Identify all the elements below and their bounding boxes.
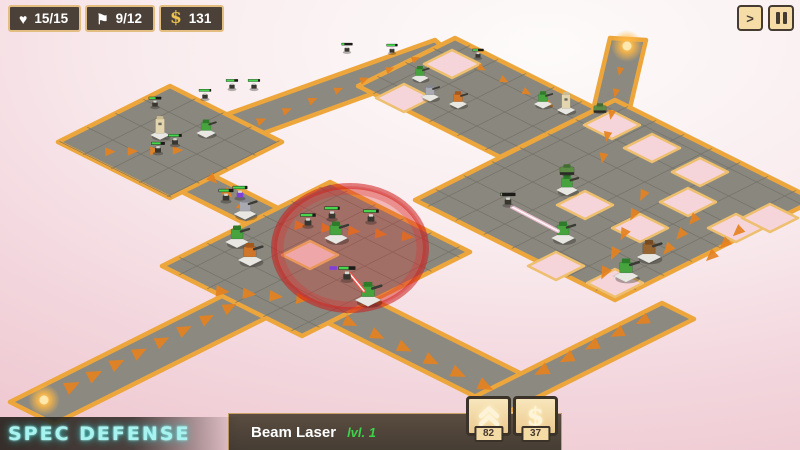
selected-tower-level: lvl. 1: [347, 425, 376, 440]
game-logo: Spec Defense: [0, 417, 242, 450]
money-counter: $ 131: [159, 5, 224, 32]
wave-value: 9/12: [116, 11, 142, 26]
game-viewport: ♥ 15/15 ⚑ 9/12 $ 131 > Spec Defense Beam…: [0, 0, 800, 450]
sell-button[interactable]: $ 37: [513, 396, 558, 436]
selection-panel: Beam Laser lvl. 1: [228, 413, 562, 450]
speed-icon: >: [746, 11, 754, 26]
lives-value: 15/15: [34, 11, 68, 26]
upgrade-button[interactable]: 82: [466, 396, 511, 436]
map-canvas[interactable]: [0, 0, 800, 450]
spawn-point: [28, 384, 60, 416]
money-value: 131: [189, 11, 212, 26]
lives-counter: ♥ 15/15: [8, 5, 81, 32]
speed-button[interactable]: >: [737, 5, 763, 31]
pause-icon: [776, 12, 787, 24]
spawn-point: [611, 30, 643, 62]
sell-value-label: 37: [521, 426, 550, 442]
pause-button[interactable]: [768, 5, 794, 31]
game-controls: >: [737, 5, 794, 31]
dollar-icon: $: [170, 10, 182, 27]
enemy-unit[interactable]: [226, 79, 238, 91]
wave-counter: ⚑ 9/12: [85, 5, 155, 32]
enemy-unit[interactable]: [386, 44, 397, 55]
selected-tower-name: Beam Laser: [251, 424, 336, 441]
enemy-unit[interactable]: [341, 43, 352, 54]
enemy-unit[interactable]: [199, 89, 211, 101]
upgrade-chevrons-icon: [476, 404, 502, 428]
tower-range-indicator: [274, 186, 426, 310]
sell-dollar-icon: $: [527, 404, 544, 429]
flag-icon: ⚑: [96, 12, 109, 26]
upgrade-cost-label: 82: [474, 426, 503, 442]
heart-icon: ♥: [19, 12, 27, 26]
resource-bar: ♥ 15/15 ⚑ 9/12 $ 131: [8, 5, 224, 32]
enemy-unit[interactable]: [248, 79, 260, 91]
